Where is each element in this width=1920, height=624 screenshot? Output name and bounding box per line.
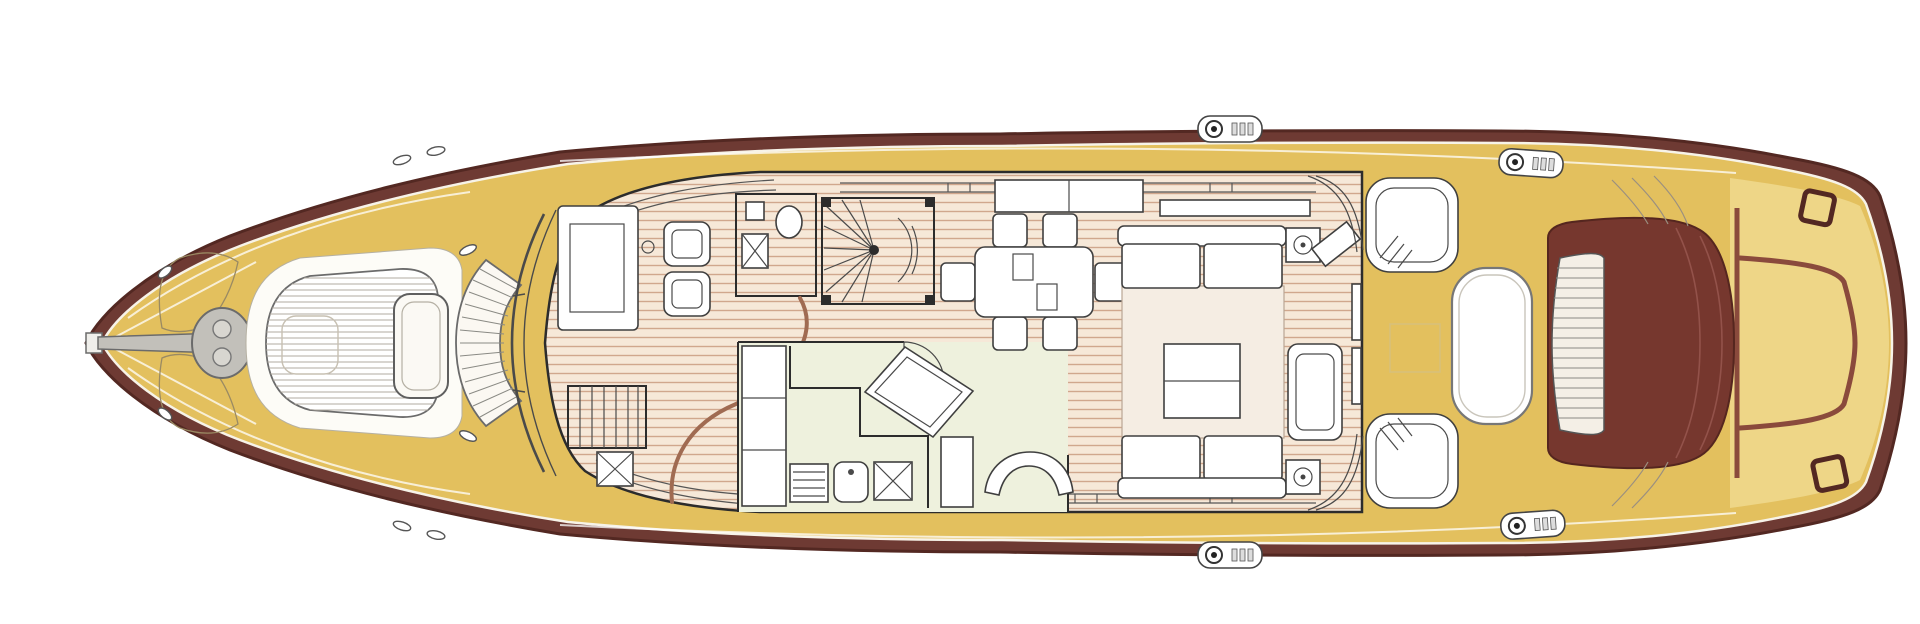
anchor-windlass [192,308,252,378]
helm-seat-1 [664,222,710,266]
aft-door-leaf-1 [1352,284,1361,340]
cockpit-bench-port [1366,178,1458,272]
mooring-winch-aft-starboard [1500,510,1566,540]
head-cabinet [746,202,764,220]
windlass-drum-bottom [213,348,231,366]
console-shelf [1160,200,1310,216]
dining-table [975,247,1093,317]
helm-seat-2 [664,272,710,316]
sink-faucet [848,469,854,475]
galley-sink [834,462,868,502]
cockpit-table [1452,268,1532,424]
aft-door-leaf-2 [1352,348,1361,404]
platform-deck [1730,178,1889,508]
staircase-hub [869,245,879,255]
floorplan-svg [0,0,1920,624]
toilet [776,206,802,238]
windlass-drum-top [213,320,231,338]
mooring-winch-aft-port [1498,148,1564,178]
bar-counter [941,437,973,507]
speaker-forward [1286,228,1320,262]
sunpad-ladder-band [1552,254,1604,435]
galley-dinette [738,342,1073,512]
swim-platform [1730,178,1889,508]
aft-sunpad [1548,218,1734,468]
cockpit-bench-starboard [1366,414,1458,508]
yacht-floorplan-canvas [0,0,1920,624]
mooring-winch-mid-starboard [1198,542,1262,568]
mooring-winch-mid-port [1198,116,1262,142]
galley-fridge [742,346,786,506]
speaker-aft [1286,460,1320,494]
